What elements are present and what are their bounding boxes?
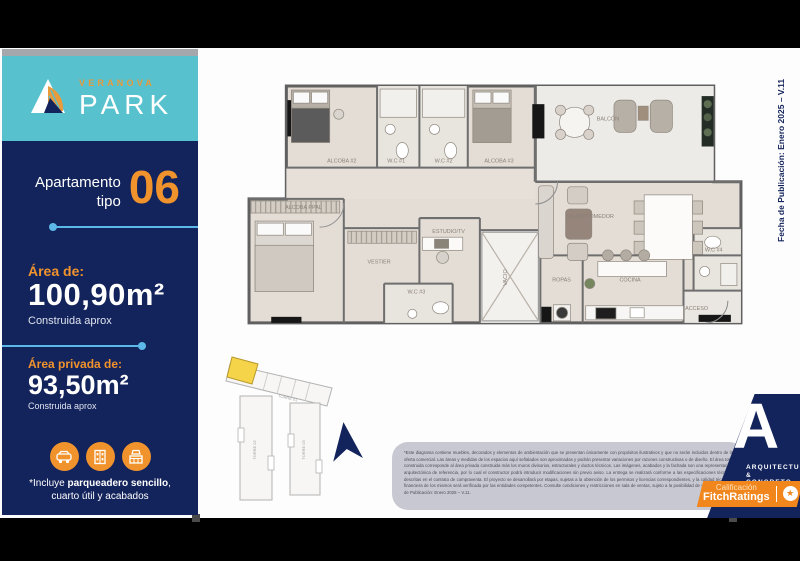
room-label: W.C #1 (387, 159, 405, 165)
room-label: VESTIER (367, 259, 390, 265)
apartment-type-number: 06 (129, 166, 180, 210)
tower-label: TORRE 03 (301, 439, 306, 459)
built-area-block: Área de: 100,90m² Construida aprox (28, 263, 165, 327)
sidebar-panel: VERANOVA PARK Apartamento tipo 06 Área d… (2, 56, 198, 515)
kitchen-finishes-icon (122, 442, 151, 471)
room-label: BALCÓN (597, 115, 619, 122)
includes-note-bold: parqueadero sencillo (67, 478, 168, 489)
rating-agency: FitchRatings (703, 492, 770, 504)
north-arrow-icon (329, 420, 363, 461)
brand-header: VERANOVA PARK (2, 56, 198, 141)
room-label: ALCOBA #3 (484, 159, 513, 165)
room-label: ALCOBA PPAL (285, 205, 322, 211)
floorplan: ALCOBA #2 W.C #1 W.C #2 ALCOBA #3 BALCÓN… (243, 84, 747, 336)
rating-seal-icon: ★ (782, 487, 797, 502)
publication-date-note: Fecha de Publicación: Enero 2025 – V.11 (776, 62, 786, 242)
void-shaft (482, 232, 538, 321)
balcony-planter (702, 96, 714, 146)
apartment-type-block: Apartamento tipo 06 (35, 166, 180, 212)
architect-name-line1: ARQUITECTURA (746, 464, 800, 471)
room-label: COCINA (619, 278, 641, 284)
divider-dot (49, 223, 57, 231)
room-label: ACCESO (685, 306, 708, 312)
private-area-label: Área privada de: (28, 357, 129, 371)
room-label: ESTUDIO/TV (432, 229, 465, 235)
room-label: ALCOBA #2 (327, 159, 356, 165)
room-label: VACIO (503, 269, 509, 286)
rating-banner: Calificación FitchRatings ★ (697, 481, 800, 507)
divider-line-top (54, 226, 198, 228)
architect-logo-letter: A (733, 394, 779, 458)
siteplan: TORRE 01 TORRE 02 TORRE 03 (220, 348, 375, 508)
room-label: W.C #3 (407, 290, 425, 296)
private-area-value: 93,50m² (28, 371, 129, 399)
siteplan-torre-02: TORRE 02 (238, 396, 274, 500)
apartment-type-label: Apartamento tipo (35, 174, 121, 212)
legal-disclaimer-text: *Este diagrama contiene muebles, decorad… (392, 442, 745, 505)
divider-line-bottom (2, 345, 142, 347)
private-area-block: Área privada de: 93,50m² Construida apro… (28, 357, 129, 411)
room-label: W.C #4 (705, 247, 723, 253)
private-area-subtext: Construida aprox (28, 401, 129, 411)
car-icon (50, 442, 79, 471)
room-label: ROPAS (552, 278, 571, 284)
includes-note: *Incluye parqueadero sencillo, cuarto út… (14, 477, 186, 503)
disclaimer-band: *Este diagrama contiene muebles, decorad… (392, 442, 745, 510)
divider-dot (138, 342, 146, 350)
room-label: SALÓN/COMEDOR (566, 213, 614, 220)
room-label: W.C #2 (435, 159, 453, 165)
siteplan-torre-03: TORRE 03 (288, 403, 322, 495)
window-handle-left (192, 514, 200, 522)
built-area-value: 100,90m² (28, 279, 165, 312)
tower-label: TORRE 02 (252, 439, 257, 459)
amenity-icons-row (2, 442, 198, 471)
brand-triangle-icon (26, 74, 70, 123)
brand-name-top: VERANOVA (79, 79, 173, 88)
rating-divider (775, 486, 776, 502)
utility-closet-icon (86, 442, 115, 471)
built-area-subtext: Construida aprox (28, 315, 165, 327)
brand-name-main: PARK (79, 91, 173, 119)
